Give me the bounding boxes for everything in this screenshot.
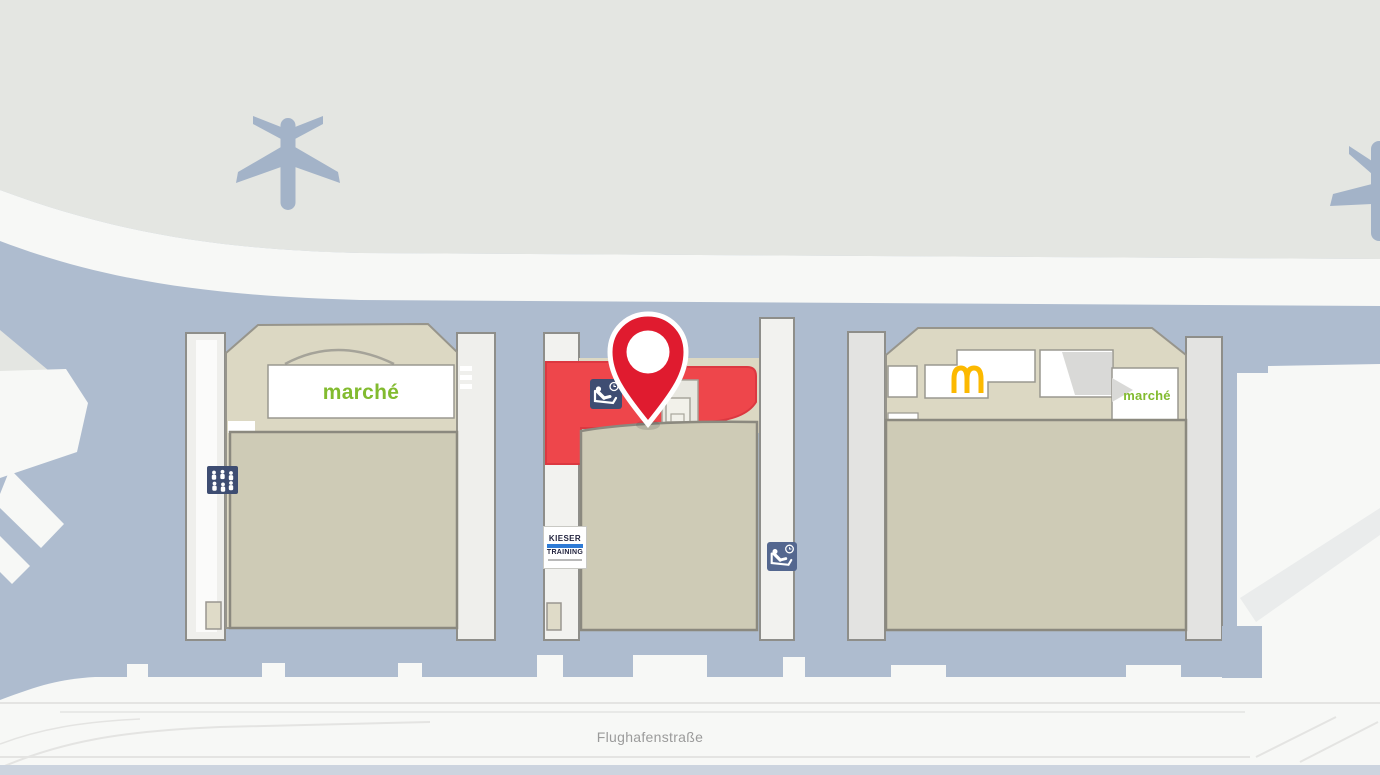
airport-terminal-map: Flughafenstraße marché: [0, 0, 1380, 775]
marche-left-label[interactable]: marché: [323, 381, 400, 404]
terminal-left-hall: [230, 432, 457, 628]
people-group-icon[interactable]: [207, 466, 238, 494]
terminal-right-east-pier: [1186, 337, 1222, 640]
terminal-left: marché: [186, 324, 495, 640]
terminal-right-west-pier: [848, 332, 885, 640]
kieser-training-logo[interactable]: KIESER TRAINING: [543, 526, 587, 569]
street-label: Flughafenstraße: [597, 729, 703, 745]
pin-hole: [627, 331, 670, 374]
pier-slats: [460, 366, 472, 389]
terminal-right: marché: [848, 328, 1222, 640]
airport-apron: [0, 0, 1380, 259]
terminal-middle-east-pier: [760, 318, 794, 640]
pier-stairwell: [206, 602, 221, 629]
unit-room: [888, 366, 917, 397]
pier-stairwell: [547, 603, 561, 630]
street-edge: [0, 765, 1380, 775]
kieser-tagline-line: [548, 559, 582, 561]
road-stub: [1222, 626, 1262, 678]
kieser-blue-bar: [547, 544, 583, 548]
kieser-line1: KIESER: [549, 535, 581, 543]
massage-chair-icon[interactable]: [767, 542, 797, 571]
kieser-line2: TRAINING: [547, 549, 583, 556]
sidewalk: [0, 677, 1380, 775]
terminal-middle-hall: [581, 422, 757, 630]
marche-right-label[interactable]: marché: [1123, 388, 1170, 403]
terminal-right-hall: [886, 420, 1186, 630]
